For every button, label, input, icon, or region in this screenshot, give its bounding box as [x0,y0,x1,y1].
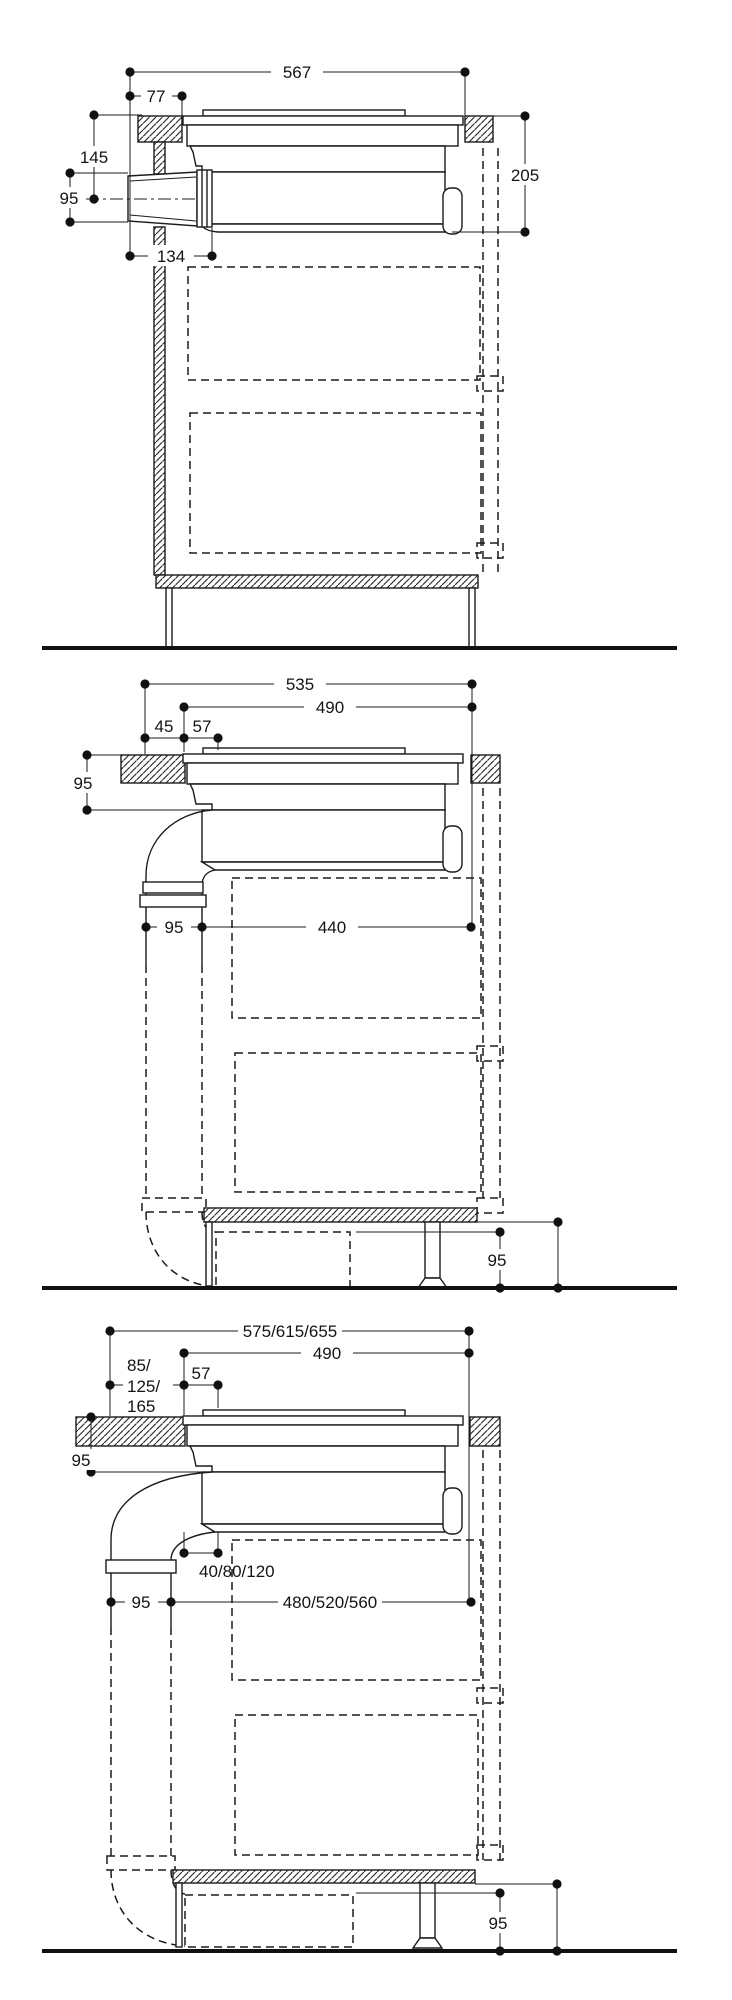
cabinet-leg-left [166,588,172,647]
dim-top-width: 567 [283,63,311,82]
dim-rear-offset: 77 [147,87,166,106]
dim-top-width: 535 [286,675,314,694]
dim-overhang-line3: 165 [127,1397,155,1416]
diagram-rear-outlet: 567 77 145 95 205 134 [42,61,677,648]
worktop-left-section [121,755,185,783]
dim-plinth-height: 95 [489,1914,508,1933]
installation-diagram-page: 567 77 145 95 205 134 [0,0,732,2000]
worktop-left-section [138,116,182,142]
installation-drawing: 567 77 145 95 205 134 [0,0,732,2000]
dim-rear-gap: 45 [155,717,174,736]
dim-overhang-line1: 85/ [127,1356,151,1375]
diagram-down-outlet: 535 490 45 57 95 95 440 95 [42,673,677,1293]
dim-front-gap: 57 [193,717,212,736]
cabinet-leg-left [206,1222,212,1286]
pipe-collar-dashed [107,1856,175,1870]
dim-counter-to-duct-center: 145 [80,148,108,167]
dim-pipe-width: 95 [165,918,184,937]
rear-duct-connector [86,170,212,227]
dim-pipe-width: 95 [132,1593,151,1612]
pipe-collar-2 [140,895,206,907]
dim-cutout-width: 490 [313,1344,341,1363]
worktop-right-section [465,116,493,142]
dim-plinth-height: 95 [488,1251,507,1270]
drawer-outline-1 [232,878,481,1018]
dim-overhang-line2: 125/ [127,1377,160,1396]
dim-floor-run-variants: 480/520/560 [283,1593,378,1612]
worktop-right-section [471,755,500,783]
dim-counter-to-duct-top: 95 [74,774,93,793]
diagram-down-outlet-variants: 575/615/655 490 85/ 125/ 165 57 95 40/80… [42,1320,677,1956]
cabinet-leg-right [469,588,475,647]
cabinet-base-panel [173,1870,475,1883]
pipe-collar-1 [143,882,203,893]
floor-duct-run-dashed [216,1232,350,1287]
dim-floor-run: 440 [318,918,346,937]
dim-front-gap: 57 [192,1364,211,1383]
cooktop-side-view [183,110,463,234]
drawer-outline-1 [188,267,480,380]
cabinet-leg-left [176,1883,182,1947]
pipe-collar-1 [106,1560,176,1573]
cooktop-side-view [183,1410,463,1534]
dim-top-width-variants: 575/615/655 [243,1322,338,1341]
cabinet-base-panel [204,1208,477,1222]
back-panel-upper [154,142,165,174]
back-panel-lower [154,227,165,575]
dim-duct-height: 95 [60,189,79,208]
dim-overall-depth: 205 [511,166,539,185]
dim-cutout-width: 490 [316,698,344,717]
pipe-collar-dashed [142,1198,206,1212]
cabinet-base-panel [156,575,478,588]
cooktop-side-view [183,748,463,872]
optional-down-duct-dashed [477,148,503,574]
dim-duct-offset-variants: 40/80/120 [199,1562,275,1581]
worktop-right-section [470,1417,500,1446]
dim-counter-to-duct-top: 95 [72,1451,91,1470]
drawer-outline-2 [235,1053,481,1192]
drawer-outline-2 [190,413,481,553]
dim-duct-length: 134 [157,247,185,266]
drawer-outline-2 [235,1715,478,1855]
floor-duct-run-dashed [185,1895,353,1947]
